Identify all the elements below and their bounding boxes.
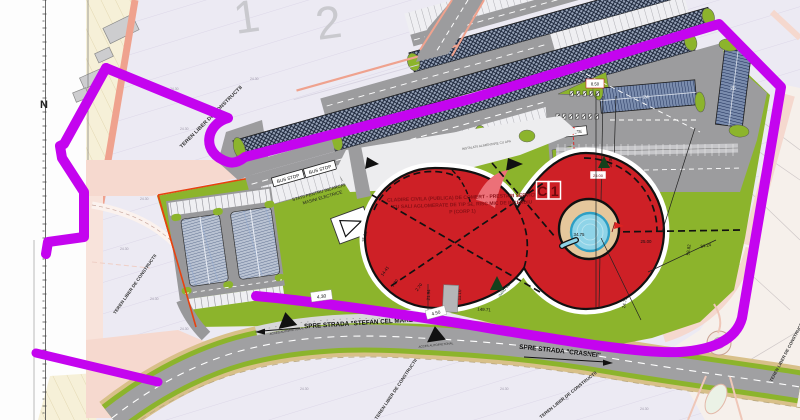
svg-text:24.30: 24.30 — [180, 327, 189, 331]
svg-text:C: C — [537, 183, 547, 199]
svg-text:24.30: 24.30 — [500, 387, 509, 391]
svg-text:1: 1 — [551, 183, 559, 199]
svg-text:24.30: 24.30 — [640, 407, 649, 411]
svg-text:149.71: 149.71 — [477, 307, 491, 313]
svg-text:25.00: 25.00 — [593, 173, 604, 178]
svg-text:24.30: 24.30 — [300, 387, 309, 391]
svg-text:24.30: 24.30 — [120, 247, 129, 251]
svg-text:8.50: 8.50 — [591, 82, 600, 87]
svg-text:P (CORP 1): P (CORP 1) — [449, 209, 476, 216]
svg-text:N: N — [40, 99, 48, 111]
svg-text:34.75: 34.75 — [574, 232, 586, 237]
svg-text:21.94: 21.94 — [426, 289, 432, 301]
svg-text:24: 24 — [643, 95, 649, 101]
svg-text:24.30: 24.30 — [140, 197, 149, 201]
svg-text:24.30: 24.30 — [250, 77, 259, 81]
svg-text:25.00: 25.00 — [641, 239, 653, 244]
svg-text:25: 25 — [730, 86, 736, 92]
svg-text:24.30: 24.30 — [180, 127, 189, 131]
svg-text:24.30: 24.30 — [150, 297, 159, 301]
